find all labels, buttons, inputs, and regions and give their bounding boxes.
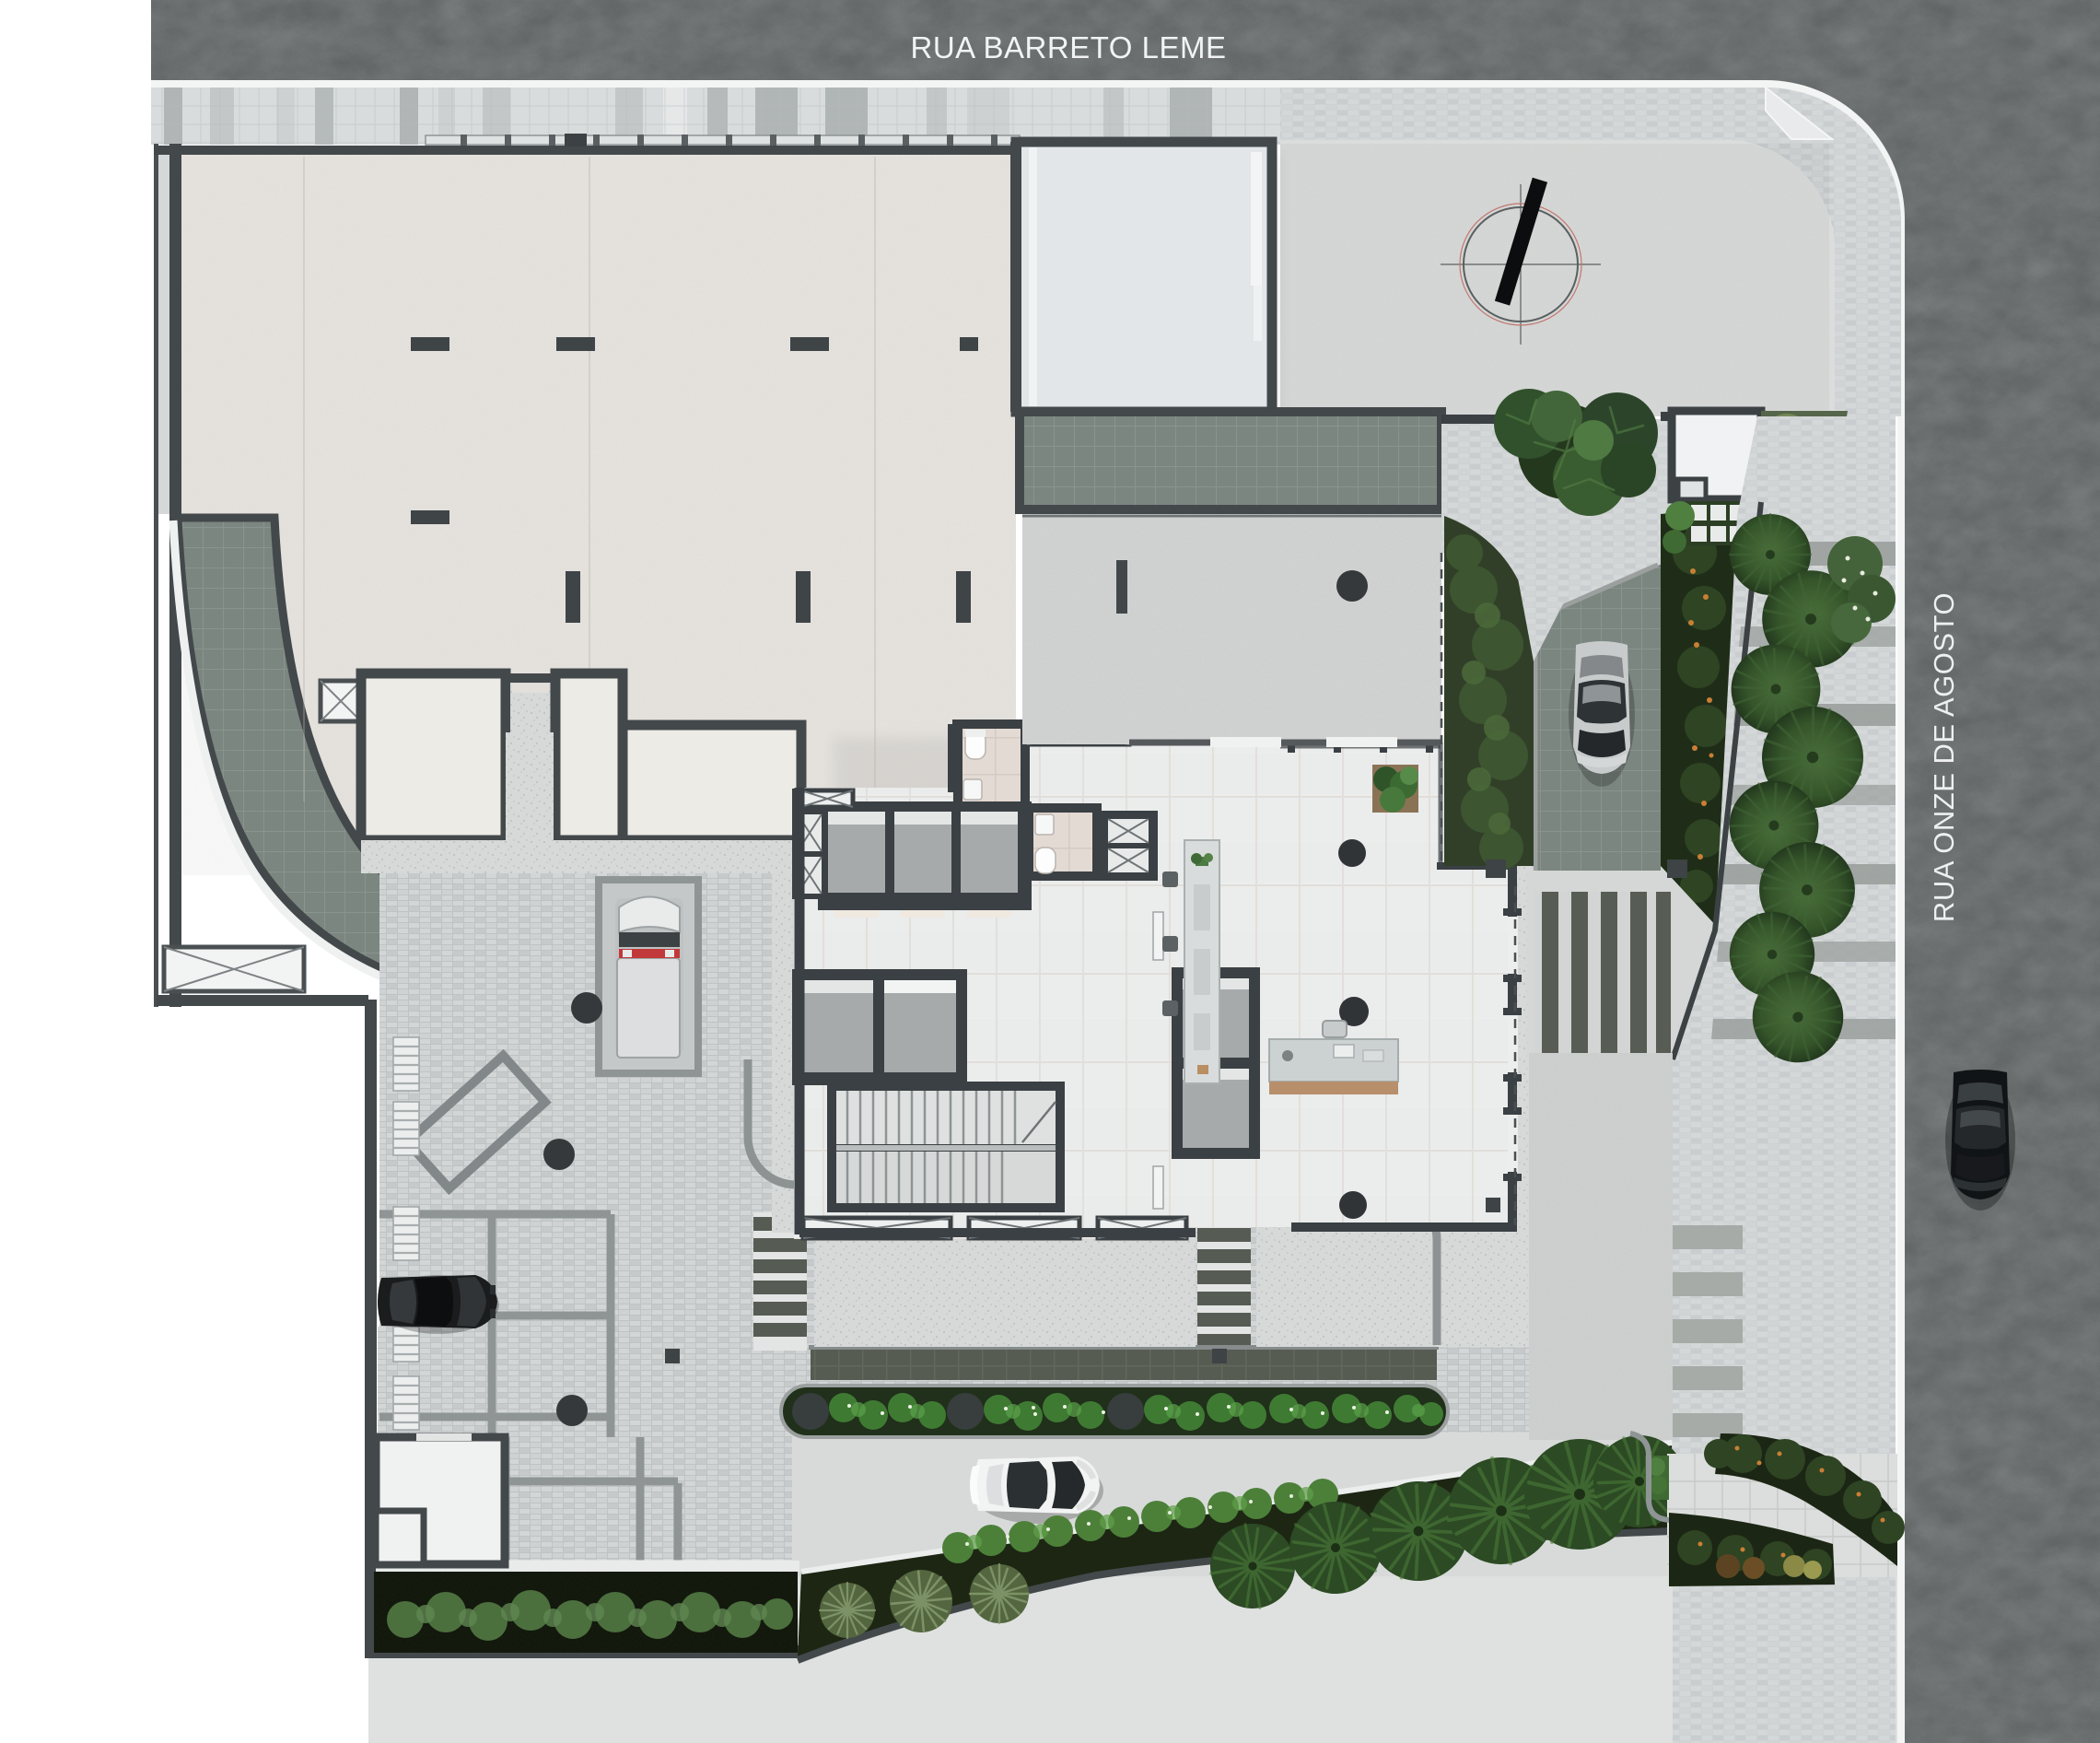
svg-text:RUA ONZE DE AGOSTO: RUA ONZE DE AGOSTO bbox=[1928, 592, 1960, 922]
svg-text:RUA BARRETO LEME: RUA BARRETO LEME bbox=[911, 30, 1227, 64]
